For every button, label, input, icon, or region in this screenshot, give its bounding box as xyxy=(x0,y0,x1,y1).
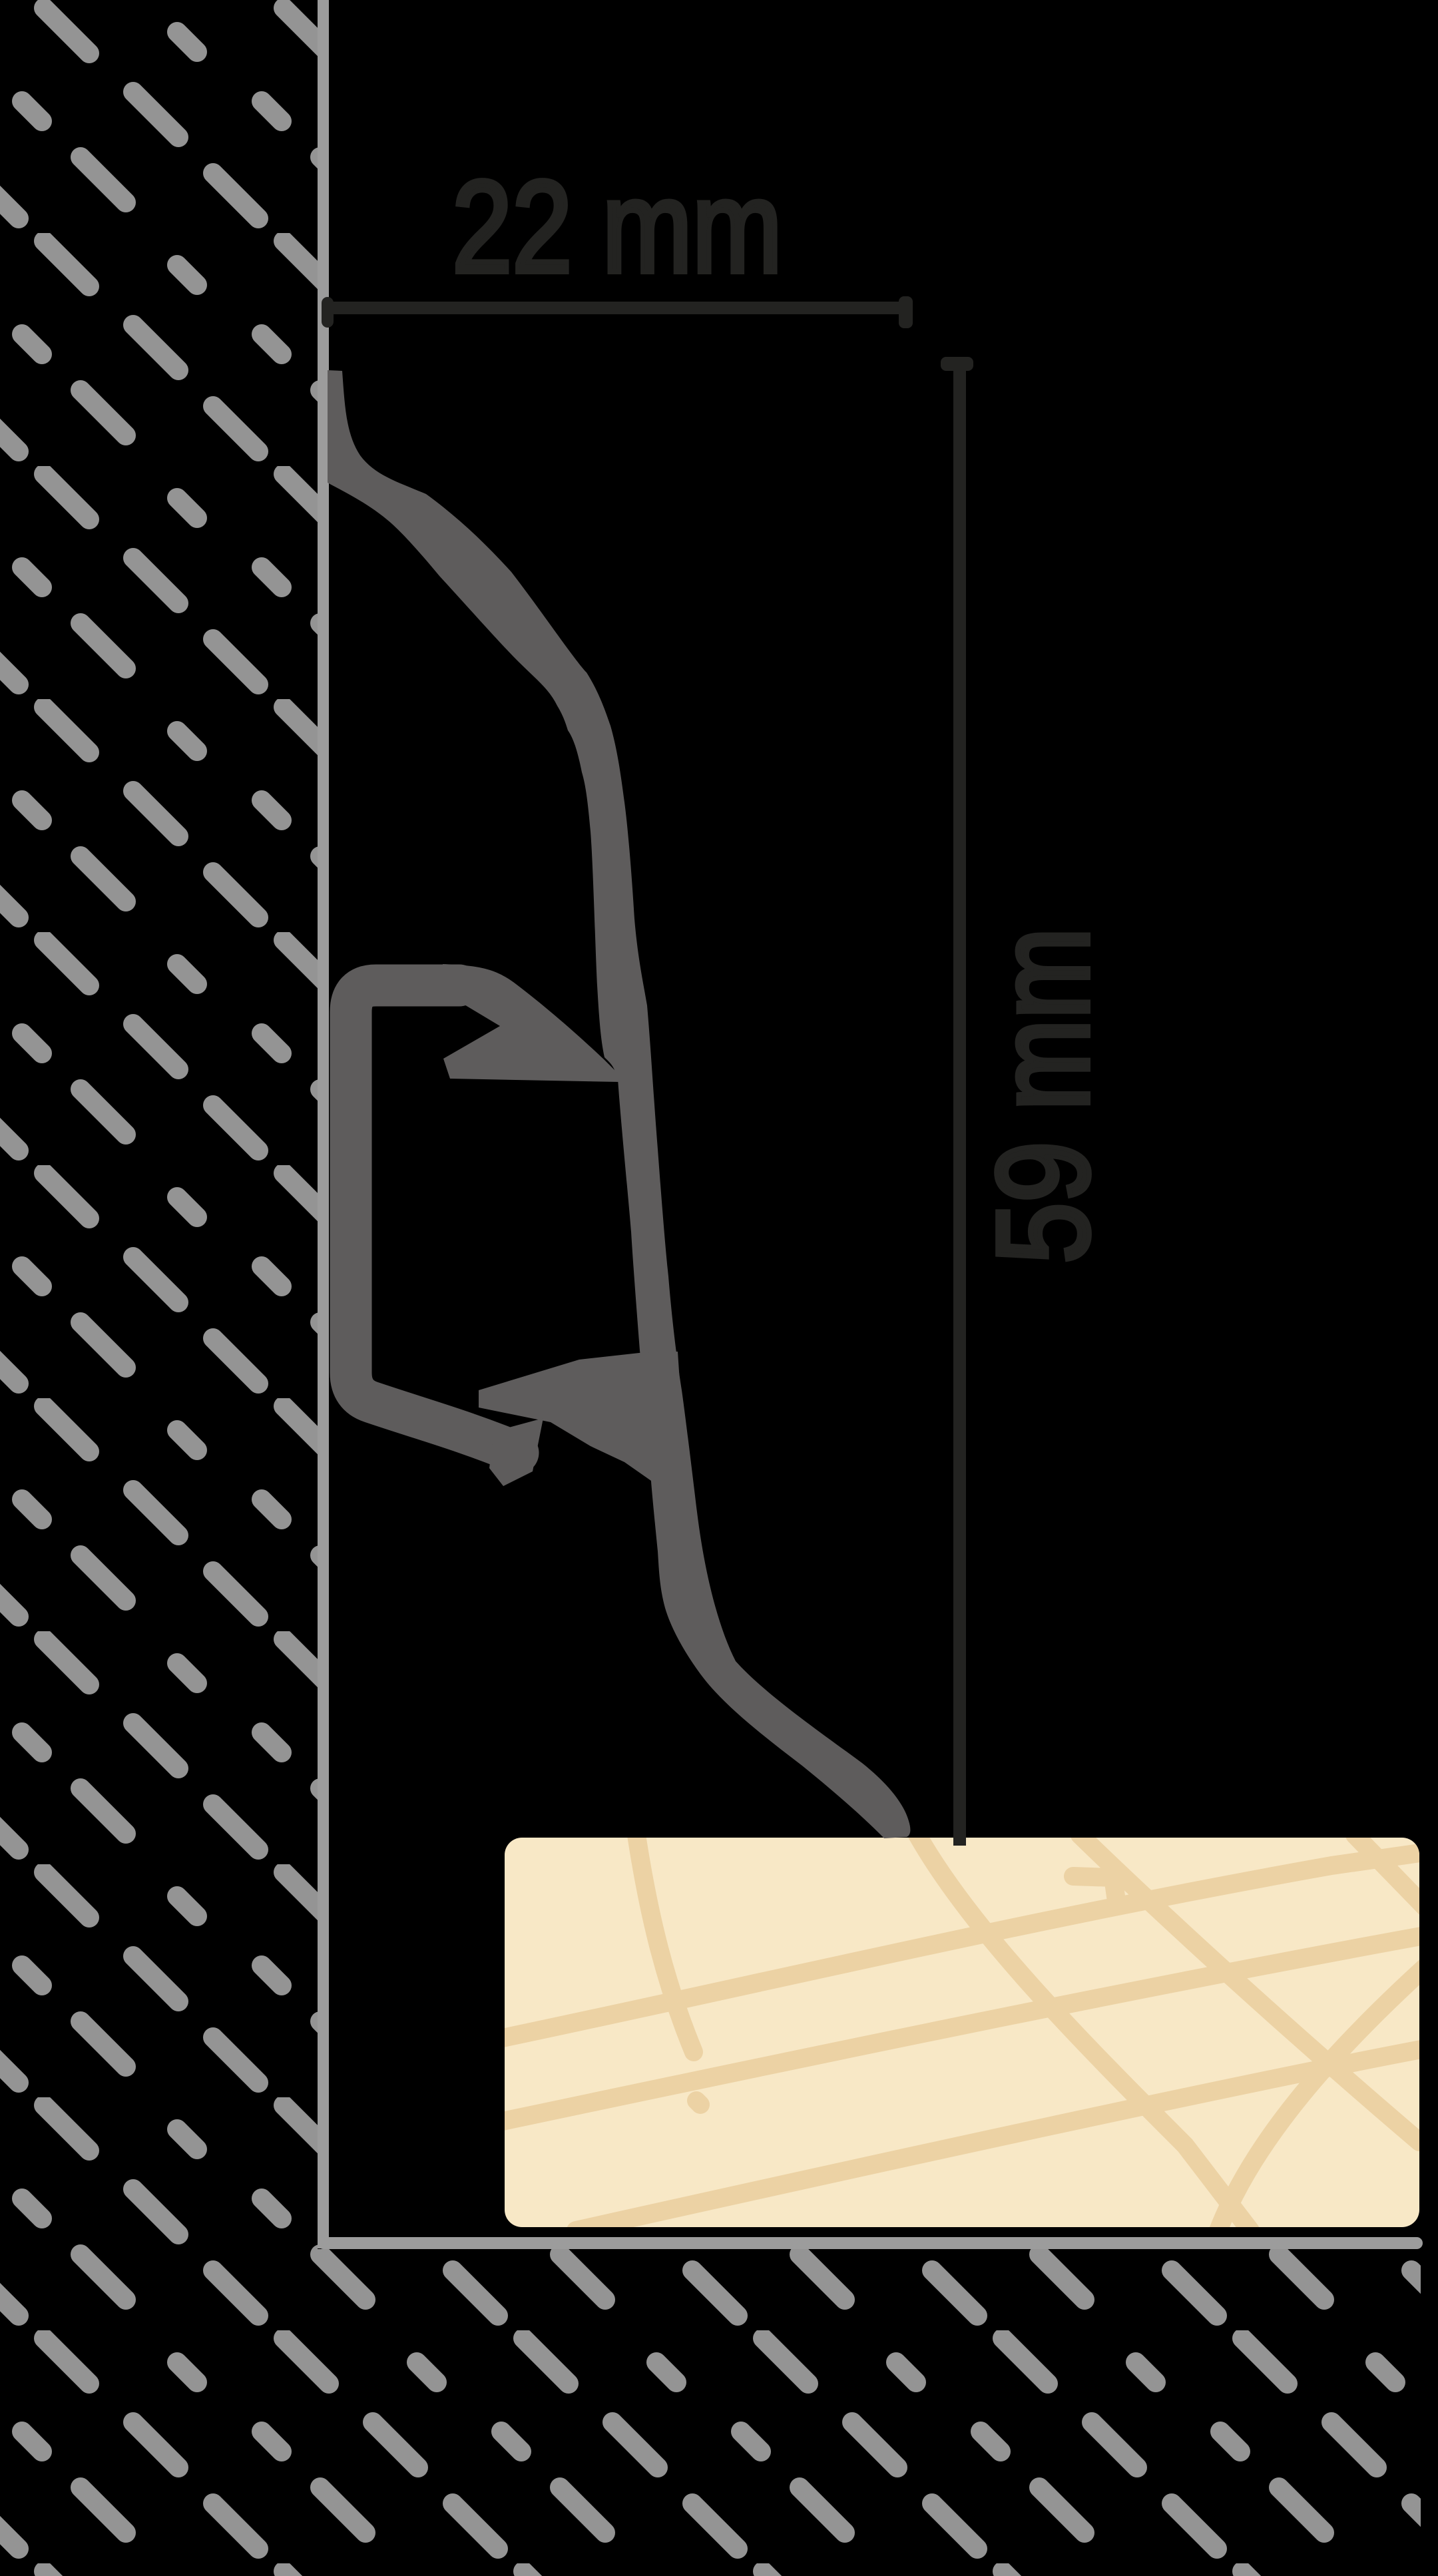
svg-text:22 mm: 22 mm xyxy=(452,154,782,300)
svg-text:59 mm: 59 mm xyxy=(970,927,1116,1264)
